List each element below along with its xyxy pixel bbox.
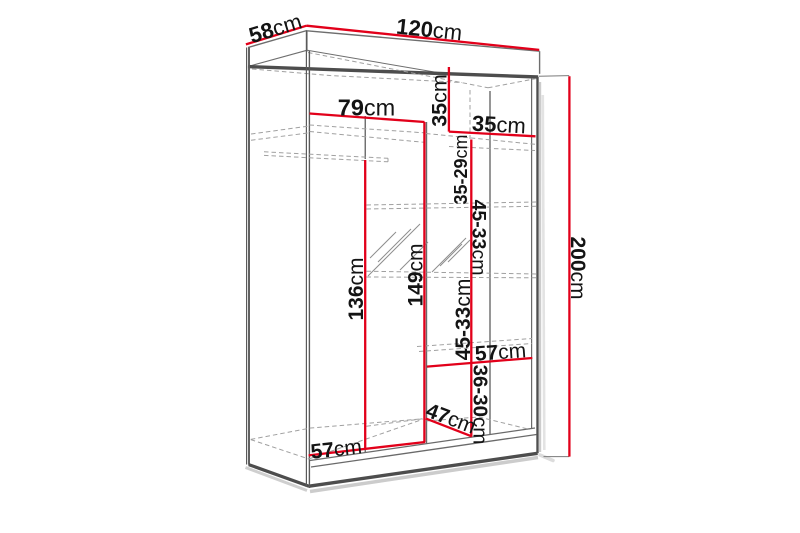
svg-text:149cm: 149cm (405, 243, 428, 306)
svg-text:200cm: 200cm (566, 236, 589, 299)
svg-text:35cm: 35cm (471, 111, 526, 139)
svg-text:79cm: 79cm (338, 95, 395, 121)
svg-text:45-33cm: 45-33cm (468, 200, 490, 276)
svg-text:57cm: 57cm (474, 339, 527, 366)
svg-text:45-33cm: 45-33cm (452, 279, 475, 361)
svg-text:136cm: 136cm (345, 257, 368, 320)
svg-text:35cm: 35cm (428, 74, 452, 127)
svg-text:35-29cm: 35-29cm (451, 134, 471, 204)
